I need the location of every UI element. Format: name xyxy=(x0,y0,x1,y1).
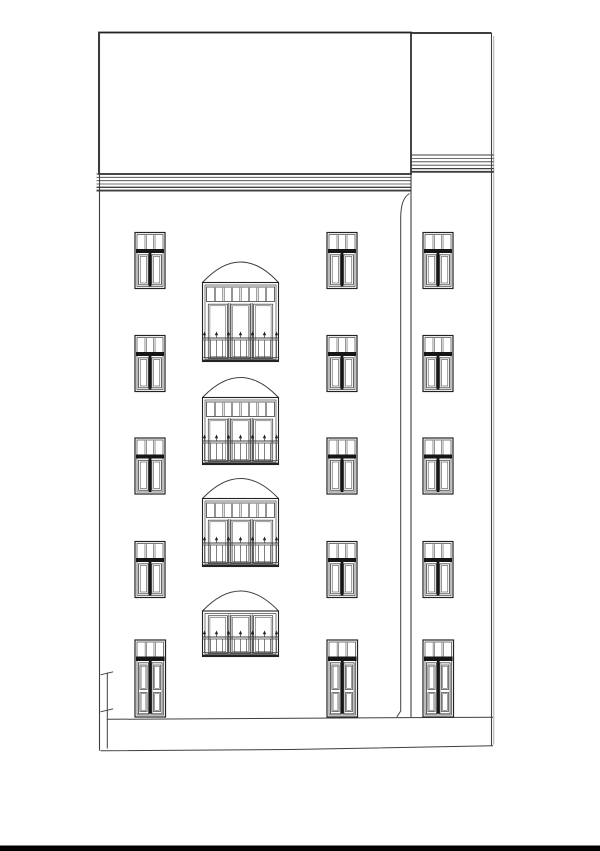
window-transom-bar xyxy=(136,558,164,562)
door-transom-bar xyxy=(328,657,357,662)
paper-edge xyxy=(0,846,600,851)
window-center-mullion xyxy=(437,459,440,493)
door-center-mullion xyxy=(341,661,344,714)
building-elevation-drawing xyxy=(0,0,600,851)
window-center-mullion xyxy=(149,253,152,287)
paper xyxy=(0,0,600,851)
window-transom-bar xyxy=(136,352,164,356)
window-transom-bar xyxy=(136,249,164,253)
drawing-sheet xyxy=(0,0,600,851)
door-transom-bar xyxy=(424,657,453,662)
window-center-mullion xyxy=(437,562,440,596)
window-transom-bar xyxy=(328,455,356,459)
window-transom-bar xyxy=(424,558,452,562)
window-transom-bar xyxy=(424,352,452,356)
scan-edge-strip xyxy=(0,846,600,851)
window-transom-bar xyxy=(328,558,356,562)
window-center-mullion xyxy=(149,562,152,596)
window-transom-bar xyxy=(136,455,164,459)
window-center-mullion xyxy=(341,253,344,287)
door-center-mullion xyxy=(149,661,152,714)
window-transom-bar xyxy=(328,249,356,253)
window-center-mullion xyxy=(149,459,152,493)
window-center-mullion xyxy=(149,356,152,390)
window-center-mullion xyxy=(341,562,344,596)
paper-background xyxy=(0,0,600,851)
window-transom-bar xyxy=(424,455,452,459)
door-center-mullion xyxy=(437,661,440,714)
window-center-mullion xyxy=(341,356,344,390)
window-transom-bar xyxy=(424,249,452,253)
window-center-mullion xyxy=(437,253,440,287)
door-transom-bar xyxy=(136,657,165,662)
window-center-mullion xyxy=(437,356,440,390)
window-center-mullion xyxy=(341,459,344,493)
window-transom-bar xyxy=(328,352,356,356)
